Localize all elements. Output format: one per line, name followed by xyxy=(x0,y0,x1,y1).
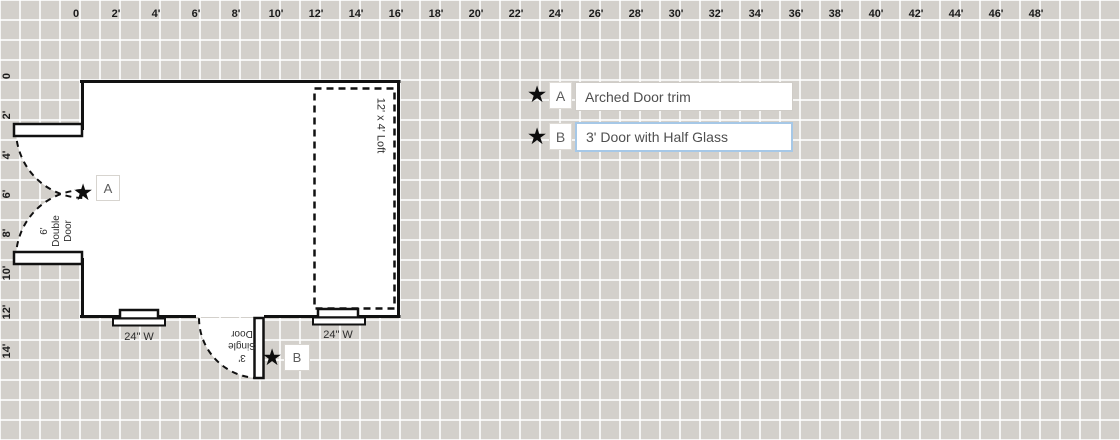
design-canvas: 02'4'6'8'10'12'14'16'18'20'22'24'26'28'3… xyxy=(0,0,1120,440)
legend-a-letter: A xyxy=(549,82,572,109)
marker-a-label[interactable]: A xyxy=(96,175,120,201)
annotation-b-input[interactable] xyxy=(575,122,793,152)
legend-b-star-icon: ★ xyxy=(522,121,552,151)
legend-b-letter: B xyxy=(549,123,572,150)
annotation-a-input[interactable] xyxy=(575,82,793,111)
legend-a-star-icon: ★ xyxy=(522,79,552,109)
marker-b-label[interactable]: B xyxy=(284,344,310,371)
marker-a-star-icon[interactable]: ★ xyxy=(68,177,98,207)
loft-label: 12' x 4' Loft xyxy=(372,88,387,164)
window-right-size-label: 24" W xyxy=(318,329,358,341)
window-left-size-label: 24" W xyxy=(119,331,159,343)
window-right[interactable] xyxy=(313,309,365,325)
floor-plan xyxy=(0,0,1120,440)
double-door-label: 6' Double Door xyxy=(39,199,77,263)
door-leaf xyxy=(14,124,82,136)
marker-b-star-icon[interactable]: ★ xyxy=(257,342,287,372)
single-door-label: 3' Single Door xyxy=(225,325,259,363)
window-left[interactable] xyxy=(113,310,165,326)
